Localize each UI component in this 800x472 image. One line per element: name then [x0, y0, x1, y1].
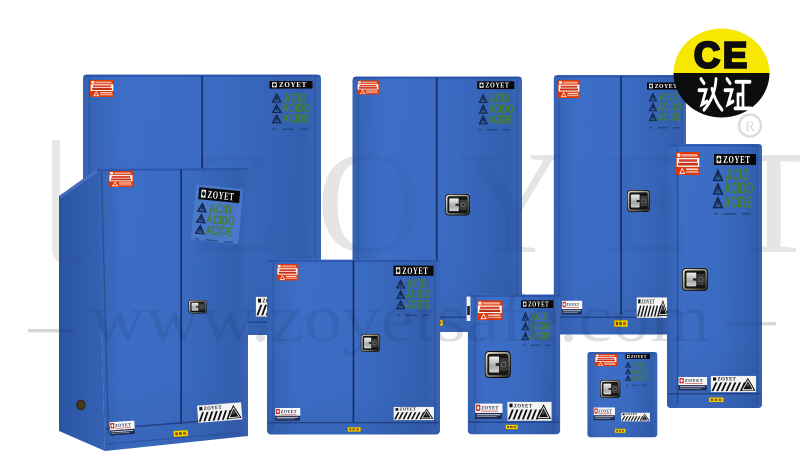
svg-text:R: R — [745, 119, 755, 135]
svg-text:ZOYET: ZOYET — [190, 121, 800, 285]
svg-text:CE: CE — [694, 35, 750, 76]
svg-text:www.zoyetsafe.com: www.zoyetsafe.com — [90, 280, 710, 356]
